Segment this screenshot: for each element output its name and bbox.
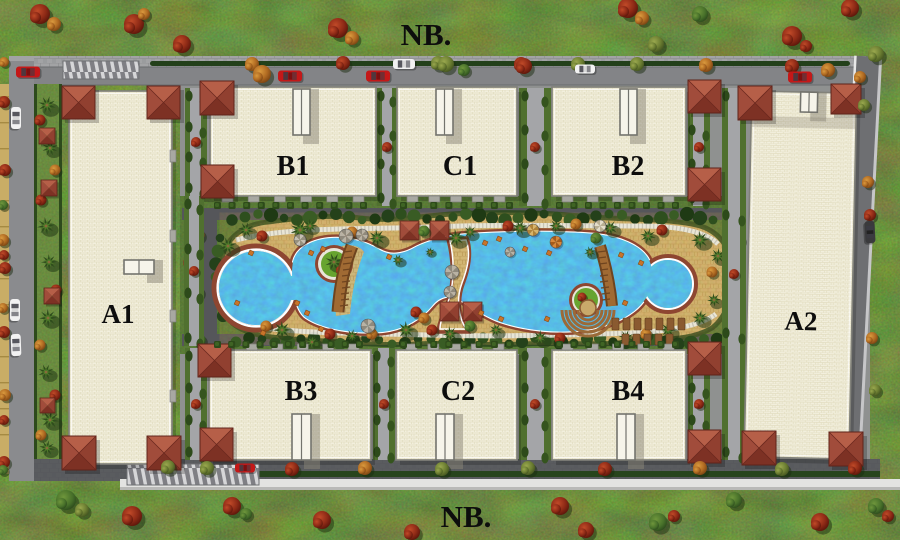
- svg-text:B1: B1: [277, 151, 310, 182]
- svg-text:B3: B3: [285, 376, 318, 407]
- svg-text:C1: C1: [443, 151, 477, 182]
- svg-text:NB.: NB.: [401, 17, 452, 52]
- svg-text:C2: C2: [441, 376, 475, 407]
- svg-text:B2: B2: [612, 151, 645, 182]
- svg-text:A1: A1: [102, 299, 135, 329]
- svg-text:A2: A2: [784, 306, 818, 337]
- svg-text:B4: B4: [612, 376, 645, 407]
- svg-text:NB.: NB.: [441, 499, 492, 534]
